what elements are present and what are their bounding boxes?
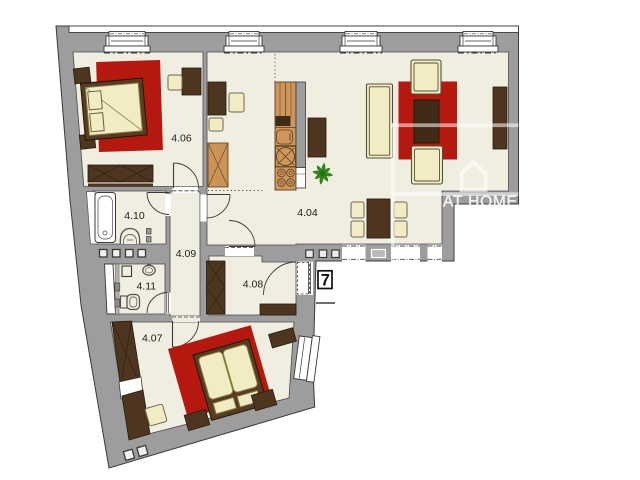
svg-text:4.08: 4.08 [243,279,264,291]
svg-text:4.10: 4.10 [124,210,145,222]
svg-text:AT HOME: AT HOME [443,194,518,211]
svg-text:4.06: 4.06 [171,133,192,145]
svg-text:7: 7 [321,272,330,290]
svg-text:4.11: 4.11 [136,281,156,293]
svg-text:4.04: 4.04 [297,207,318,219]
svg-text:4.07: 4.07 [142,333,163,345]
svg-text:4.09: 4.09 [176,248,197,260]
